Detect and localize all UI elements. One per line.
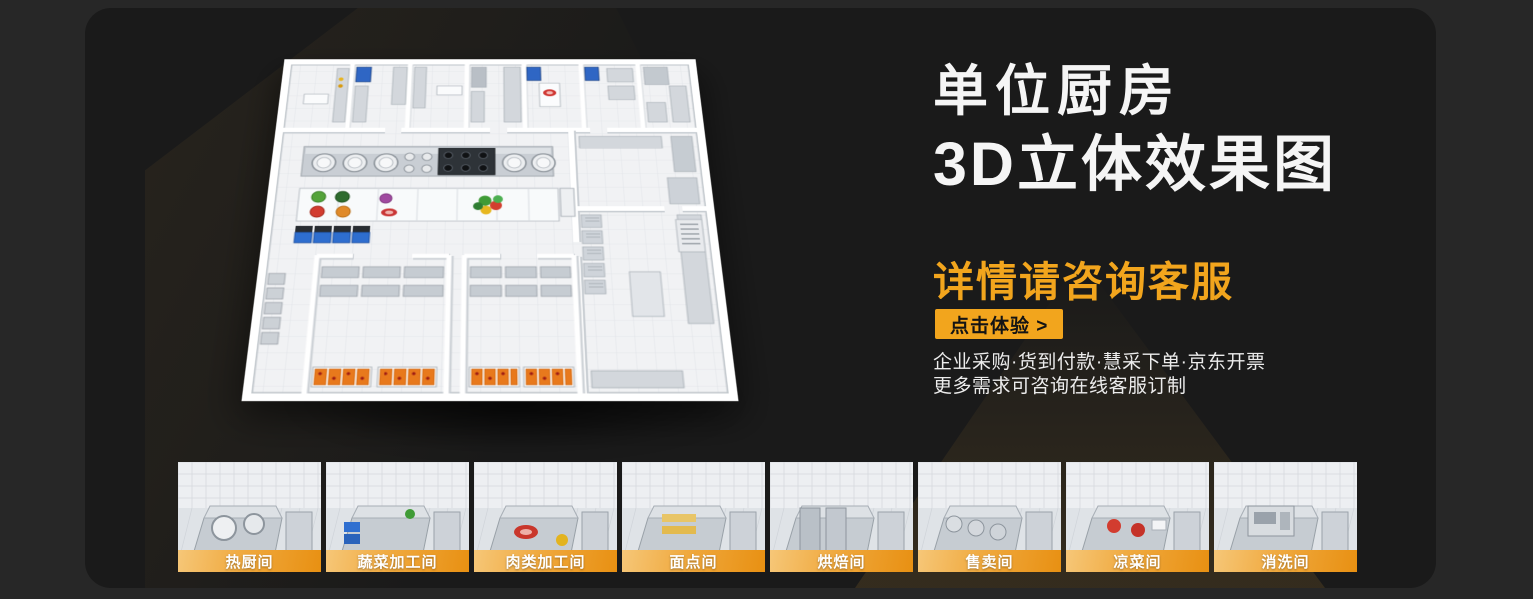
thumbnail-row: 热厨间蔬菜加工间肉类加工间面点间烘焙间售卖间凉菜间消洗间	[178, 462, 1357, 572]
room-thumbnail[interactable]: 面点间	[622, 462, 765, 572]
room-thumbnail-label: 售卖间	[918, 550, 1061, 572]
top-rooms-equipment	[301, 67, 690, 122]
room-thumbnail[interactable]: 凉菜间	[1066, 462, 1209, 572]
room-thumbnail-label: 烘焙间	[770, 550, 913, 572]
room-thumbnail-label: 蔬菜加工间	[326, 550, 469, 572]
left-carts	[260, 273, 285, 344]
blue-machines-row	[294, 226, 370, 243]
room-thumbnail-label: 消洗间	[1214, 550, 1357, 572]
subtitle-consult-service: 详情请咨询客服	[933, 248, 1234, 308]
kitchen-floorplan-3d	[262, 8, 718, 474]
prep-table	[296, 188, 575, 221]
description-line-2: 更多需求可咨询在线客服订制	[933, 375, 1265, 399]
blue-machines-top	[356, 67, 600, 82]
room-thumbnail[interactable]: 售卖间	[918, 462, 1061, 572]
dining-room-b	[462, 255, 581, 393]
cta-button[interactable]: 点击体验 >	[935, 309, 1063, 339]
room-thumbnail[interactable]: 肉类加工间	[474, 462, 617, 572]
dining-room-a	[304, 255, 450, 393]
vegetable-pile	[473, 195, 503, 214]
room-thumbnail[interactable]: 蔬菜加工间	[326, 462, 469, 572]
promo-banner: 单位厨房 3D立体效果图 详情请咨询客服 点击体验 > 企业采购·货到付款·慧采…	[0, 0, 1533, 599]
room-thumbnail[interactable]: 烘焙间	[770, 462, 913, 572]
title-line-2: 3D立体效果图	[933, 132, 1337, 198]
room-thumbnail-label: 热厨间	[178, 550, 321, 572]
right-wing-equipment	[577, 136, 721, 387]
banner-card: 单位厨房 3D立体效果图 详情请咨询客服 点击体验 > 企业采购·货到付款·慧采…	[85, 8, 1436, 588]
room-thumbnail-label: 面点间	[622, 550, 765, 572]
room-thumbnail[interactable]: 热厨间	[178, 462, 321, 572]
title-line-1: 单位厨房	[933, 62, 1181, 121]
room-thumbnail-label: 凉菜间	[1066, 550, 1209, 572]
room-thumbnail[interactable]: 消洗间	[1214, 462, 1357, 572]
description-text: 企业采购·货到付款·慧采下单·京东开票 更多需求可咨询在线客服订制	[933, 351, 1265, 399]
description-line-1: 企业采购·货到付款·慧采下单·京东开票	[933, 351, 1265, 375]
food-tray-units	[311, 367, 574, 387]
cook-line	[301, 147, 556, 177]
room-thumbnail-label: 肉类加工间	[474, 550, 617, 572]
floorplan-shadow	[215, 338, 815, 468]
